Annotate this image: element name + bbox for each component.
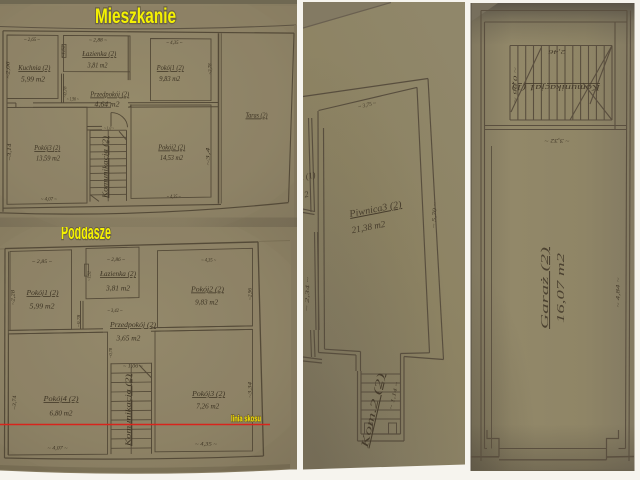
svg-text:Pokój2 (2): Pokój2 (2) bbox=[190, 285, 225, 294]
svg-text:Komunikacja (2): Komunikacja (2) bbox=[101, 135, 110, 199]
svg-text:~ 2,85 ~: ~ 2,85 ~ bbox=[32, 260, 52, 265]
svg-text:~ 4,84 ~: ~ 4,84 ~ bbox=[616, 278, 622, 308]
svg-text:Pokój2 (2): Pokój2 (2) bbox=[157, 143, 185, 152]
svg-text:~ 4,35 ~: ~ 4,35 ~ bbox=[167, 195, 181, 200]
svg-text:~ 3,42 ~: ~ 3,42 ~ bbox=[108, 309, 123, 314]
svg-text:~ 0,96 ~: ~ 0,96 ~ bbox=[512, 67, 518, 103]
svg-text:Garaż (2): Garaż (2) bbox=[539, 246, 551, 329]
svg-text:Komunikacja1 (1): Komunikacja1 (1) bbox=[512, 83, 602, 92]
svg-text:~ 2,34 ~: ~ 2,34 ~ bbox=[304, 277, 311, 311]
svg-text:13,59 m2: 13,59 m2 bbox=[36, 155, 60, 163]
svg-text:~2,96: ~2,96 bbox=[248, 287, 253, 300]
svg-text:16,07 m2: 16,07 m2 bbox=[556, 253, 567, 323]
svg-text:~2,28: ~2,28 bbox=[11, 289, 16, 305]
svg-text:~ 3,32 ~: ~ 3,32 ~ bbox=[543, 137, 569, 143]
svg-text:5,99 m2: 5,99 m2 bbox=[21, 76, 45, 84]
svg-text:Łazienka (2): Łazienka (2) bbox=[99, 269, 136, 278]
svg-text:7,26 m2: 7,26 m2 bbox=[196, 403, 219, 411]
svg-text:~ 4,35 ~: ~ 4,35 ~ bbox=[166, 41, 182, 46]
svg-text:Pokój1 (2): Pokój1 (2) bbox=[156, 63, 184, 72]
svg-text:14,53 m2: 14,53 m2 bbox=[160, 154, 183, 162]
svg-text:~ 2,86 ~: ~ 2,86 ~ bbox=[107, 258, 125, 263]
svg-text:~3,34: ~3,34 bbox=[249, 381, 254, 398]
svg-text:4,64 m2: 4,64 m2 bbox=[95, 101, 120, 109]
svg-text:~ 2,65 ~: ~ 2,65 ~ bbox=[24, 38, 40, 43]
svg-text:~3,4: ~3,4 bbox=[207, 147, 212, 166]
svg-text:9,83 m2: 9,83 m2 bbox=[159, 75, 180, 83]
svg-text:2,46: 2,46 bbox=[548, 48, 565, 55]
svg-text:Pokój3 (2): Pokój3 (2) bbox=[191, 389, 226, 398]
svg-text:Przedpokój (2): Przedpokój (2) bbox=[109, 320, 157, 329]
svg-text:~2,06: ~2,06 bbox=[7, 61, 12, 79]
svg-text:9,83 m2: 9,83 m2 bbox=[195, 299, 218, 307]
svg-text:Pokój1 (2): Pokój1 (2) bbox=[25, 288, 59, 297]
svg-text:Taras (2): Taras (2) bbox=[246, 111, 268, 120]
svg-text:~ 1,06 ~: ~ 1,06 ~ bbox=[123, 365, 143, 370]
svg-text:Przedpokój (2): Przedpokój (2) bbox=[89, 90, 129, 99]
svg-text:~ 4,07 ~: ~ 4,07 ~ bbox=[41, 198, 57, 203]
svg-text:~3,74: ~3,74 bbox=[13, 395, 18, 410]
svg-text:~2,78: ~2,78 bbox=[209, 63, 214, 75]
svg-text:3,65 m2: 3,65 m2 bbox=[115, 335, 140, 343]
svg-text:Mieszkanie: Mieszkanie bbox=[95, 5, 176, 28]
svg-text:Pokój3 (2): Pokój3 (2) bbox=[33, 143, 60, 152]
svg-text:~ 2,88 ~: ~ 2,88 ~ bbox=[89, 39, 107, 44]
svg-text:5,99 m2: 5,99 m2 bbox=[30, 303, 55, 311]
svg-text:Komunikacja (2): Komunikacja (2) bbox=[124, 373, 133, 447]
svg-text:6,80 m2: 6,80 m2 bbox=[50, 410, 73, 418]
svg-text:~ 1,96 ~: ~ 1,96 ~ bbox=[67, 98, 79, 103]
svg-text:Kuchnia (2): Kuchnia (2) bbox=[17, 63, 50, 72]
svg-text:z: z bbox=[129, 104, 132, 109]
svg-text:~ 4,35 ~: ~ 4,35 ~ bbox=[195, 443, 217, 448]
svg-text:~ 4,35 ~: ~ 4,35 ~ bbox=[201, 259, 216, 264]
svg-text:3,81 m2: 3,81 m2 bbox=[87, 62, 108, 70]
svg-text:3,81 m2: 3,81 m2 bbox=[105, 285, 130, 293]
svg-text:linia skosu: linia skosu bbox=[231, 414, 261, 425]
svg-text:~3,14: ~3,14 bbox=[8, 143, 13, 161]
svg-text:Łazienka (2): Łazienka (2) bbox=[81, 49, 116, 58]
svg-text:~ 4,07 ~: ~ 4,07 ~ bbox=[48, 447, 68, 452]
svg-text:Pokój4 (2): Pokój4 (2) bbox=[42, 394, 79, 403]
